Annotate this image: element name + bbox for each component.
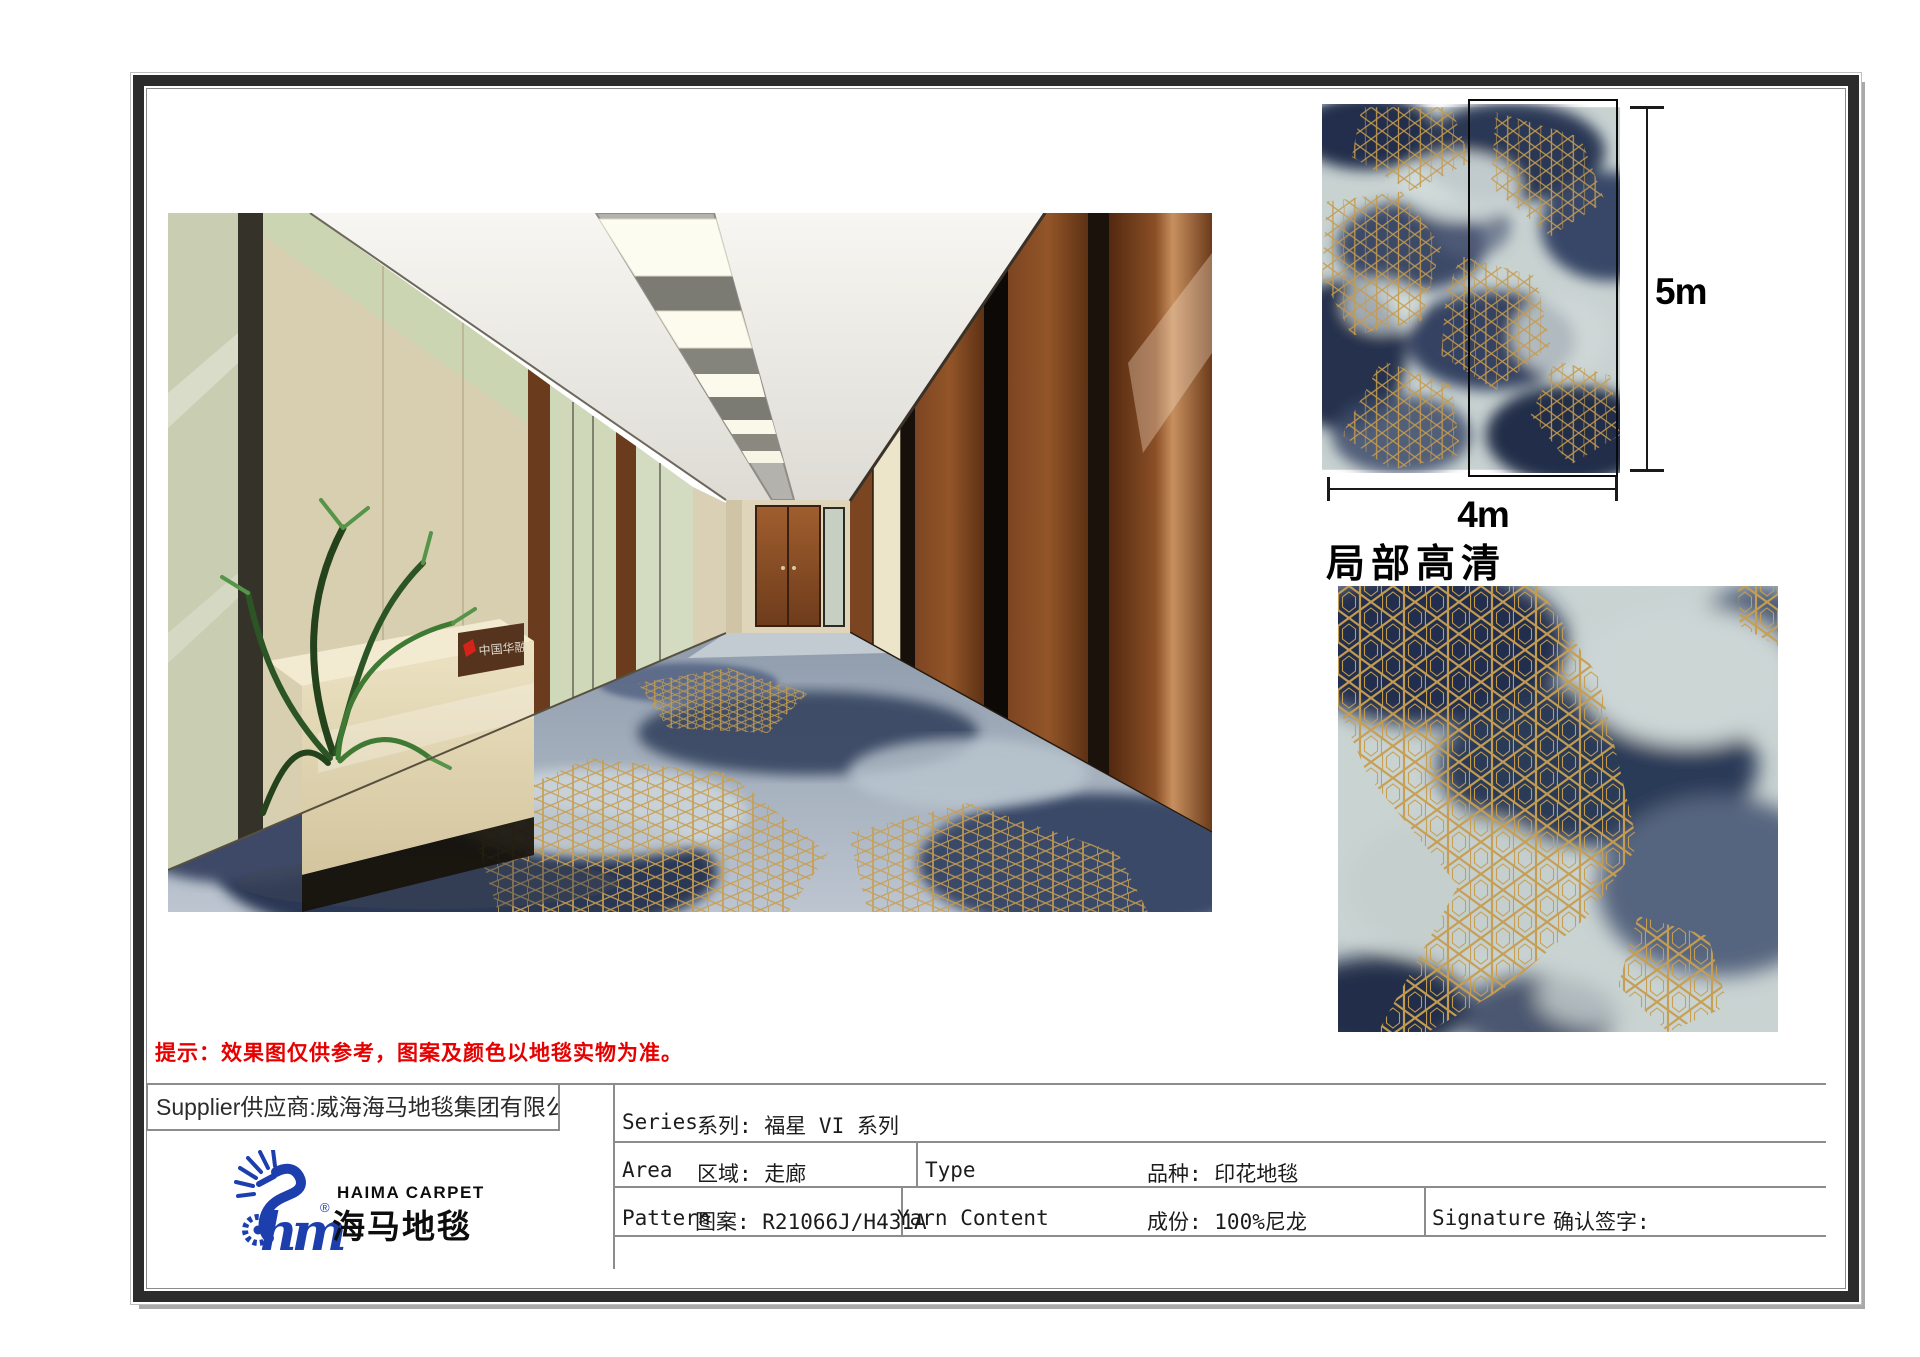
area-label: Area xyxy=(622,1158,673,1182)
type-label: Type xyxy=(925,1158,976,1182)
series-row-line xyxy=(613,1141,1826,1143)
area-type-divider xyxy=(916,1141,918,1188)
supplier-cell: Supplier供应商:威海海马地毯集团有限公司 xyxy=(146,1083,560,1131)
registered-mark: ® xyxy=(320,1200,330,1215)
dim-tick-left xyxy=(1327,477,1330,501)
series-value: 系列: 福星 VI 系列 xyxy=(697,1110,899,1140)
carpet-detail-image xyxy=(1338,586,1778,1032)
roll-width-overlay-rect xyxy=(1468,99,1618,477)
pattern-value: 图案: R21066J/H431A xyxy=(695,1206,927,1236)
dim-line-horizontal xyxy=(1328,488,1618,490)
yarn-label: Yarn Content xyxy=(897,1206,1049,1230)
yarn-value: 成份: 100%尼龙 xyxy=(1147,1206,1307,1236)
detail-heading: 局部高清 xyxy=(1326,533,1506,589)
table-left-divider xyxy=(613,1083,615,1269)
dim-tick-right xyxy=(1615,477,1618,501)
brand-name-cn: 海马地毯 xyxy=(332,1200,472,1248)
dim-tick-top xyxy=(1630,106,1664,109)
disclaimer-note: 提示：效果图仅供参考，图案及颜色以地毯实物为准。 xyxy=(155,1037,683,1067)
yarn-signature-divider xyxy=(1424,1186,1426,1237)
dim-line-vertical xyxy=(1646,107,1648,472)
dim-tick-bottom xyxy=(1630,469,1664,472)
height-dimension-label: 5m xyxy=(1655,271,1706,313)
far-wall xyxy=(726,500,850,633)
spec-sheet-page: 中国华融 xyxy=(0,0,1920,1357)
width-dimension-label: 4m xyxy=(1443,494,1523,536)
series-label: Series xyxy=(622,1110,698,1134)
corridor-render-image: 中国华融 xyxy=(168,213,1212,912)
type-value: 品种: 印花地毯 xyxy=(1147,1158,1298,1188)
signature-value: 确认签字: xyxy=(1553,1206,1650,1236)
signature-label: Signature xyxy=(1432,1206,1546,1230)
area-value: 区域: 走廊 xyxy=(697,1158,806,1188)
